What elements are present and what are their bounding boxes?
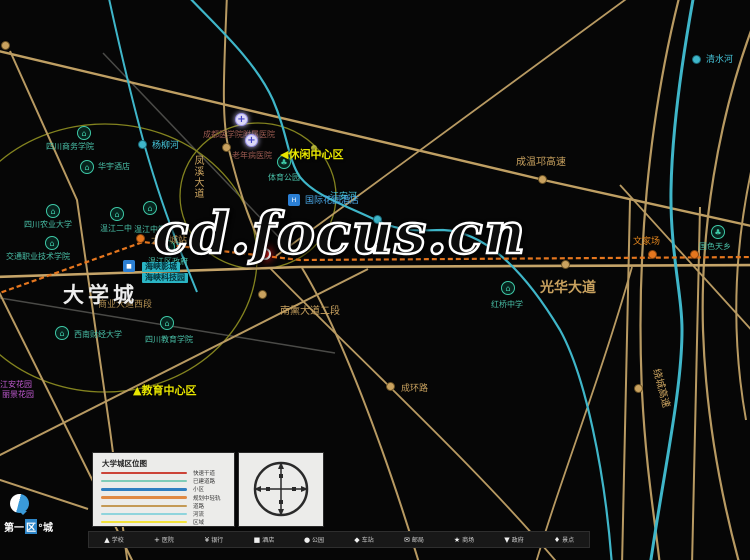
logo-text-suf: °城 — [38, 519, 53, 534]
key-item-公园: ●公园 — [289, 535, 339, 544]
legend-line-swatch — [101, 505, 187, 508]
school-marker-红桥中学[interactable]: ⌂ — [501, 281, 515, 295]
logo-text-mid: 区 — [25, 519, 37, 534]
legend-item-label: 河流 — [193, 510, 204, 518]
legend-box: 大学城区位图 快速干道已建道路小区规划中轻轨道路河流区域 — [92, 452, 235, 527]
poi-label: 温江二中 — [100, 225, 132, 233]
key-item-学校: ▲学校 — [89, 535, 139, 544]
key-item-icon: + — [154, 536, 160, 544]
place-label: 文家场 — [633, 238, 660, 247]
key-item-label: 学校 — [112, 535, 124, 544]
riverdot-marker[interactable] — [138, 140, 147, 149]
park-marker-国色天乡[interactable]: ♣ — [711, 225, 725, 239]
road-fengxi — [224, 0, 270, 257]
road-raocheng — [641, 0, 680, 560]
legend-line-swatch — [101, 472, 187, 475]
school-marker-西南财经大学[interactable]: ⌂ — [55, 326, 69, 340]
map-key-strip: ▲学校+医院¥银行■酒店●公园◆车站✉邮局★商场▼政府♦景点 — [88, 531, 590, 548]
roaddot-marker[interactable] — [538, 175, 547, 184]
legend-item-label: 已建道路 — [193, 477, 215, 485]
place-label: 凤溪大道 — [192, 155, 202, 199]
chip-label[interactable]: 海峡科技园 — [142, 273, 188, 283]
key-item-政府: ▼政府 — [489, 535, 539, 544]
key-item-icon: ▼ — [504, 536, 509, 544]
school-marker-温江二中[interactable]: ⌂ — [110, 207, 124, 221]
key-item-icon: ▲ — [104, 536, 109, 544]
legend-item: 快速干道 — [101, 469, 215, 477]
legend-item: 规划中轻轨 — [101, 494, 221, 502]
legend-item: 已建道路 — [101, 477, 215, 485]
key-item-银行: ¥银行 — [189, 535, 239, 544]
hotel-marker[interactable]: H — [288, 194, 300, 206]
station-marker[interactable] — [690, 250, 699, 259]
place-label: 成温邛高速 — [516, 158, 566, 168]
legend-item: 道路 — [101, 502, 204, 510]
school-marker-四川教育学院[interactable]: ⌂ — [160, 316, 174, 330]
legend-line-swatch — [101, 488, 187, 491]
key-item-icon: ¥ — [205, 536, 209, 544]
key-item-label: 景点 — [562, 535, 574, 544]
balloon-logo-icon — [10, 494, 29, 513]
poi-label: 体育公园 — [268, 174, 300, 182]
legend-item-label: 小区 — [193, 485, 204, 493]
key-item-icon: ♦ — [554, 536, 560, 544]
key-item-icon: ● — [304, 536, 310, 544]
site-logo-text: 第一 区 °城 — [4, 519, 84, 534]
compass-box — [238, 452, 324, 527]
poi-label: 红桥中学 — [491, 301, 523, 309]
legend-line-swatch — [101, 496, 187, 499]
key-item-label: 政府 — [512, 535, 524, 544]
map-road — [622, 200, 630, 560]
legend-item: 河流 — [101, 510, 204, 518]
poi-label: 四川教育学院 — [145, 336, 193, 344]
place-label: 清水河 — [706, 56, 733, 65]
site-marker[interactable] — [261, 250, 269, 258]
legend-item-label: 区域 — [193, 518, 204, 526]
school-marker-华宇酒店[interactable]: ⌂ — [80, 160, 94, 174]
poi-label: 华宇酒店 — [98, 163, 130, 171]
key-item-label: 车站 — [362, 535, 374, 544]
compass-icon — [239, 453, 323, 526]
place-label: 南熏大道二段 — [280, 307, 340, 317]
key-item-label: 酒店 — [262, 535, 274, 544]
station-marker[interactable] — [136, 234, 145, 243]
roaddot-marker[interactable] — [258, 290, 267, 299]
place-label: 成环路 — [401, 385, 428, 394]
legend-line-swatch — [101, 521, 187, 524]
poi-label: 四川农业大学 — [24, 221, 72, 229]
key-item-icon: ◆ — [354, 536, 359, 544]
legend-title: 大学城区位图 — [102, 458, 147, 469]
school-marker-温江中学[interactable]: ⌂ — [143, 201, 157, 215]
river-qingshui — [650, 0, 694, 560]
roaddot-marker[interactable] — [222, 143, 231, 152]
map-road — [276, 0, 633, 256]
hospital-marker-老年病医院[interactable]: + — [245, 134, 258, 147]
key-item-icon: ✉ — [404, 536, 410, 544]
key-item-景点: ♦景点 — [539, 535, 589, 544]
poi-label: 西南财经大学 — [74, 331, 122, 339]
legend-item: 小区 — [101, 485, 204, 493]
legend-line-swatch — [101, 513, 187, 516]
poi-label: 成都医学院附属医院 — [203, 131, 275, 139]
chip-label[interactable]: 海峡影城 — [142, 262, 180, 272]
legend-item: 区域 — [101, 518, 204, 526]
key-item-label: 公园 — [312, 535, 324, 544]
key-item-医院: +医院 — [139, 535, 189, 544]
place-label: 大学城站 — [151, 237, 187, 246]
key-item-label: 商场 — [462, 535, 474, 544]
map-stage[interactable]: ⌂四川商务学院⌂华宇酒店⌂四川农业大学⌂交通职业技术学院⌂温江二中⌂温江中学⌂温… — [0, 0, 750, 560]
key-item-label: 医院 — [162, 535, 174, 544]
map-road — [535, 267, 632, 560]
roaddot-marker[interactable] — [634, 384, 643, 393]
place-label: 光华大道 — [540, 281, 596, 295]
poi-label: 国色天乡 — [699, 243, 731, 251]
place-label: 杨柳河 — [152, 142, 179, 151]
riverdot-marker[interactable] — [373, 215, 382, 224]
key-item-icon: ■ — [254, 536, 261, 544]
logo-text-pre: 第一 — [4, 519, 24, 534]
district-label: ◀休闲中心区 — [280, 149, 343, 160]
key-item-icon: ★ — [454, 536, 460, 544]
place-label: 丽景花园 — [2, 391, 34, 399]
cinema-marker[interactable]: ■ — [123, 260, 135, 272]
school-marker-四川商务学院[interactable]: ⌂ — [77, 126, 91, 140]
key-item-label: 邮局 — [412, 535, 424, 544]
riverdot-marker[interactable] — [692, 55, 701, 64]
map-road — [703, 28, 750, 560]
map-road — [736, 150, 750, 420]
station-marker[interactable] — [648, 250, 657, 259]
key-item-酒店: ■酒店 — [239, 535, 289, 544]
poi-label: 四川商务学院 — [46, 143, 94, 151]
legend-item-label: 规划中轻轨 — [193, 494, 221, 502]
legend-line-swatch — [101, 480, 187, 483]
place-label: 国际花园酒店 — [305, 197, 359, 206]
road-chengwenqiong — [0, 50, 750, 227]
key-item-邮局: ✉邮局 — [389, 535, 439, 544]
poi-label: 交通职业技术学院 — [6, 253, 70, 261]
legend-item-label: 道路 — [193, 502, 204, 510]
district-label: ▲教育中心区 — [133, 385, 196, 396]
roaddot-marker[interactable] — [1, 41, 10, 50]
roaddot-marker[interactable] — [561, 260, 570, 269]
hospital-marker-成都医学院附属医院[interactable]: + — [235, 113, 248, 126]
site-logo: 第一 区 °城 — [4, 494, 84, 534]
map-road — [0, 269, 368, 458]
university-town-label: 大学城 — [63, 285, 138, 306]
poi-label: 老年病医院 — [232, 152, 272, 160]
map-road — [692, 207, 700, 560]
school-marker-交通职业技术学院[interactable]: ⌂ — [45, 236, 59, 250]
key-item-label: 银行 — [211, 535, 223, 544]
legend-item-label: 快速干道 — [193, 469, 215, 477]
key-item-车站: ◆车站 — [339, 535, 389, 544]
poi-label: 温江中学 — [134, 226, 166, 234]
key-item-商场: ★商场 — [439, 535, 489, 544]
roaddot-marker[interactable] — [386, 382, 395, 391]
road-guanghua — [0, 265, 750, 277]
place-label: 江安花园 — [0, 381, 32, 389]
school-marker-四川农业大学[interactable]: ⌂ — [46, 204, 60, 218]
